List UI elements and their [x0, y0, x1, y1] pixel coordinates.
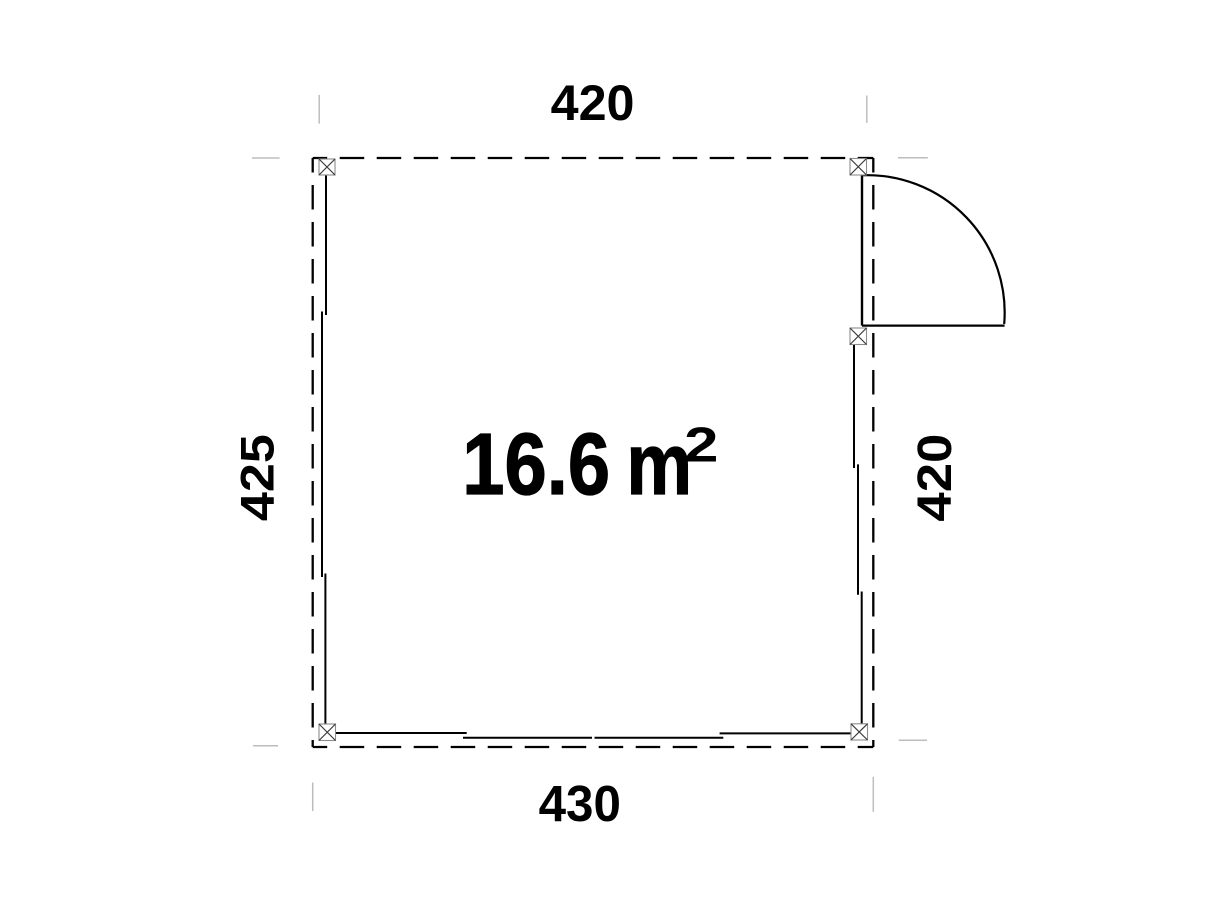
- svg-text:16.6: 16.6: [462, 416, 610, 513]
- svg-text:420: 420: [908, 434, 962, 522]
- svg-text:2: 2: [684, 416, 718, 472]
- svg-text:420: 420: [551, 74, 635, 131]
- svg-text:m: m: [626, 416, 692, 513]
- svg-text:425: 425: [231, 434, 284, 521]
- svg-text:430: 430: [539, 775, 621, 832]
